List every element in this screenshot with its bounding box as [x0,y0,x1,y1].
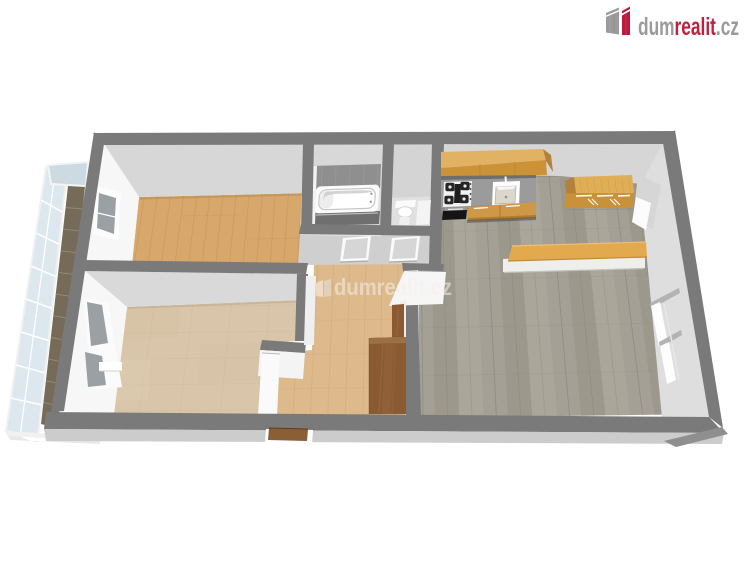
svg-text:dumrealit.cz: dumrealit.cz [638,13,739,41]
svg-text:dumrealit.cz: dumrealit.cz [334,274,452,300]
